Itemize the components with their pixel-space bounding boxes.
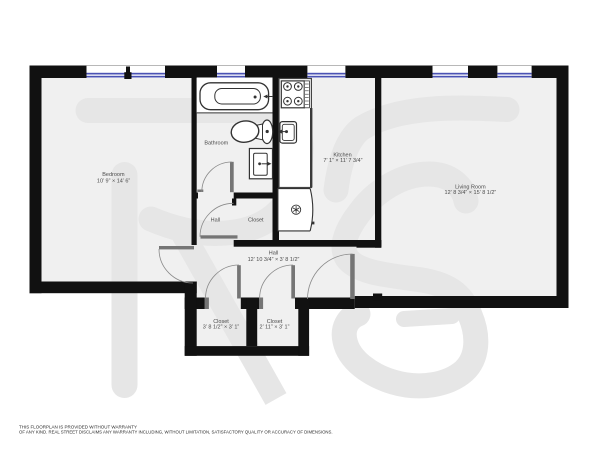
svg-text:Hall: Hall <box>211 218 220 224</box>
svg-text:OF ANY KIND. REAL STREET DISCL: OF ANY KIND. REAL STREET DISCLAIMS ANY W… <box>19 430 333 435</box>
svg-text:2’ 11” × 3’ 1”: 2’ 11” × 3’ 1” <box>260 324 290 330</box>
svg-text:12’ 8 3/4” × 15’ 8 1/2”: 12’ 8 3/4” × 15’ 8 1/2” <box>445 190 497 196</box>
svg-text:7’ 1” × 11’ 7 3/4”: 7’ 1” × 11’ 7 3/4” <box>323 158 362 164</box>
svg-text:Bathroom: Bathroom <box>204 141 228 147</box>
svg-text:Closet: Closet <box>248 218 264 224</box>
svg-text:Bedroom: Bedroom <box>102 172 125 178</box>
svg-text:3’ 8 1/2” × 3’ 1”: 3’ 8 1/2” × 3’ 1” <box>203 324 240 330</box>
svg-text:10’ 9” × 14’ 6”: 10’ 9” × 14’ 6” <box>97 179 131 185</box>
svg-text:Hall: Hall <box>269 251 278 257</box>
svg-text:12’ 10 3/4” × 3’ 8 1/2”: 12’ 10 3/4” × 3’ 8 1/2” <box>248 257 300 263</box>
